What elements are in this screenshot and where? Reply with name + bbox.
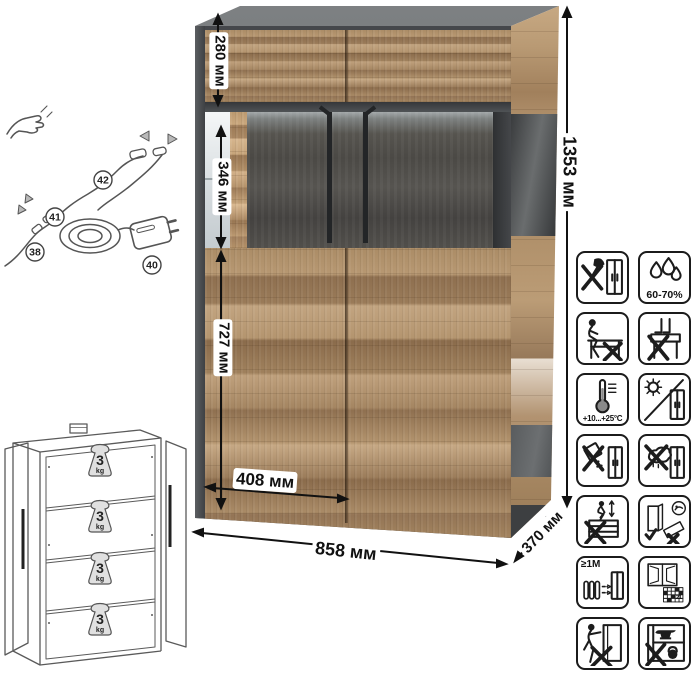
cabinet-upper-doors bbox=[205, 30, 511, 102]
no-direct-sunlight-icon bbox=[638, 373, 691, 426]
power-adapter-icon bbox=[129, 214, 180, 250]
humidity-range-icon: 60-70% bbox=[638, 251, 691, 304]
svg-text:kg: kg bbox=[96, 468, 104, 475]
no-standing-icon bbox=[638, 312, 691, 365]
svg-text:40: 40 bbox=[146, 260, 158, 272]
weight-icon: 3 kg bbox=[89, 604, 111, 636]
ventilate-room-icon: 21 bbox=[638, 556, 691, 609]
svg-text:41: 41 bbox=[49, 212, 61, 224]
no-overloading-icon bbox=[638, 617, 691, 670]
weight-icon: 3 kg bbox=[89, 501, 111, 533]
upper-section-bottom-edge bbox=[195, 102, 511, 112]
care-icon-grid: 60-70% bbox=[576, 251, 691, 670]
svg-text:kg: kg bbox=[96, 524, 104, 531]
weight-icon: 3 kg bbox=[89, 445, 111, 477]
part-label-42: 42 bbox=[94, 171, 112, 189]
svg-text:3: 3 bbox=[96, 611, 104, 627]
weight-icon: 3 kg bbox=[89, 553, 111, 585]
no-jumping-icon bbox=[576, 495, 629, 548]
no-wet-cloth-icon bbox=[638, 434, 691, 487]
part-label-38: 38 bbox=[26, 243, 44, 261]
dim-glass-section: 346 мм bbox=[213, 158, 232, 215]
open-left-door bbox=[5, 443, 28, 655]
cabinet-left-edge bbox=[195, 26, 205, 538]
upper-door-gap bbox=[345, 30, 348, 102]
dim-lower-section: 727 мм bbox=[214, 319, 233, 376]
svg-text:42: 42 bbox=[97, 175, 109, 187]
humidity-label: 60-70% bbox=[640, 289, 689, 301]
product-dimension-sheet: 280 мм 346 мм 727 мм 408 мм 858 мм 370 м… bbox=[0, 0, 700, 678]
dim-top-section: 280 мм bbox=[210, 32, 229, 89]
temperature-label: +10...+25°C bbox=[578, 414, 627, 423]
glass-section-right-frame bbox=[493, 112, 511, 248]
no-spilling-icon bbox=[576, 434, 629, 487]
calendar-day-label: 21 bbox=[676, 595, 682, 601]
svg-text:3: 3 bbox=[96, 452, 104, 468]
cabinet-side-glass-band bbox=[511, 114, 561, 236]
cabinet-side-gray-band bbox=[511, 425, 561, 477]
led-wiring-illustration: 42 41 38 40 bbox=[2, 98, 194, 283]
transport-upright-icon bbox=[638, 495, 691, 548]
no-sitting-icon bbox=[576, 312, 629, 365]
dim-height: 1353 мм bbox=[558, 133, 581, 211]
svg-text:kg: kg bbox=[96, 576, 104, 583]
no-sharp-tools-icon bbox=[576, 251, 629, 304]
lower-door-gap bbox=[345, 248, 348, 523]
no-dragging-icon bbox=[576, 617, 629, 670]
svg-text:3: 3 bbox=[96, 560, 104, 576]
cabinet-lower-doors bbox=[205, 248, 511, 538]
distance-label: ≥1M bbox=[581, 559, 600, 570]
cabinet-render bbox=[185, 0, 585, 578]
hand-icon bbox=[7, 116, 44, 138]
glass-display-section bbox=[247, 112, 493, 248]
svg-text:38: 38 bbox=[29, 247, 41, 259]
svg-text:kg: kg bbox=[96, 627, 104, 634]
shelf-load-diagram: 3 kg 3 kg 3 kg 3 kg bbox=[0, 423, 190, 678]
glass-section-side-wall bbox=[230, 112, 247, 248]
temperature-range-icon: +10...+25°C bbox=[576, 373, 629, 426]
svg-text:3: 3 bbox=[96, 508, 104, 524]
heat-source-distance-icon: ≥1M bbox=[576, 556, 629, 609]
part-label-40: 40 bbox=[143, 256, 161, 274]
part-label-41: 41 bbox=[46, 208, 64, 226]
